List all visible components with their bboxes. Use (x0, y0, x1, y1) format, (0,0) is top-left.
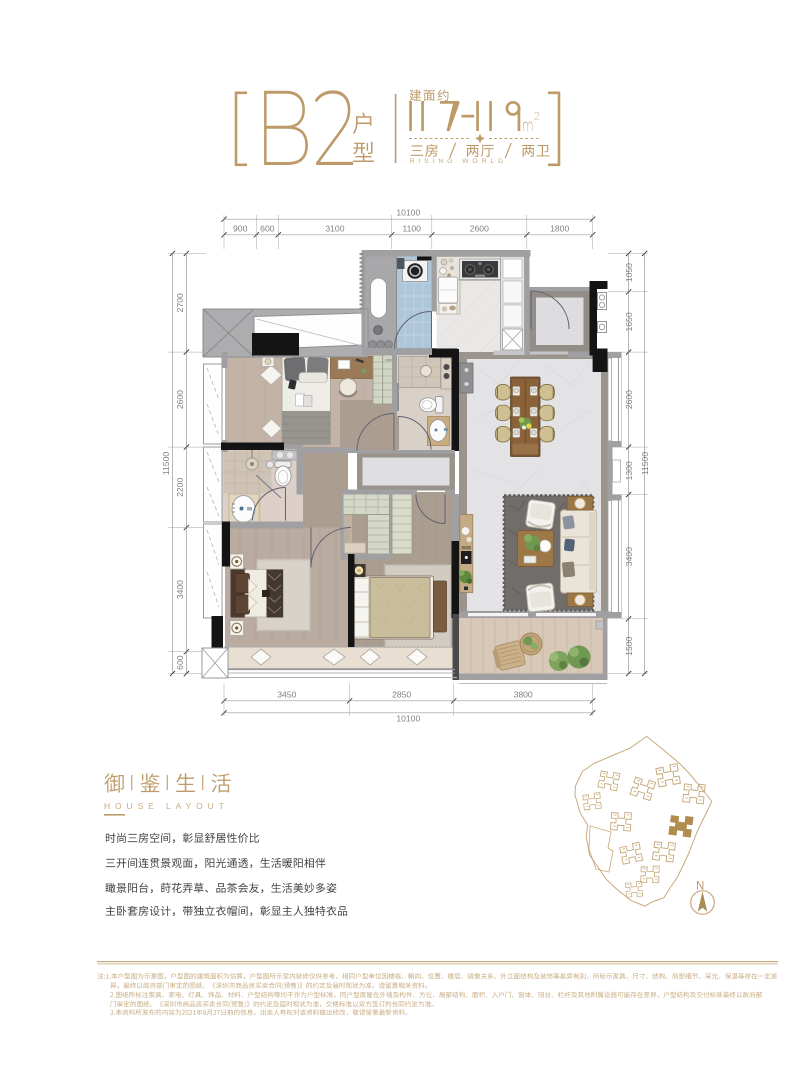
svg-text:3400: 3400 (175, 580, 185, 599)
svg-text:900: 900 (233, 223, 248, 233)
svg-text:3450: 3450 (277, 690, 296, 700)
svg-text:11500: 11500 (161, 452, 171, 475)
svg-text:2600: 2600 (175, 390, 185, 409)
svg-text:3800: 3800 (514, 690, 533, 700)
svg-text:3400: 3400 (624, 547, 634, 566)
svg-text:1050: 1050 (624, 263, 634, 282)
svg-text:2700: 2700 (175, 293, 185, 312)
svg-text:600: 600 (260, 223, 275, 233)
svg-text:1300: 1300 (624, 461, 634, 480)
svg-text:11500: 11500 (640, 452, 650, 475)
svg-text:2200: 2200 (175, 478, 185, 497)
svg-text:2600: 2600 (624, 390, 634, 409)
svg-text:1800: 1800 (550, 223, 569, 233)
svg-text:1100: 1100 (402, 223, 421, 233)
svg-text:2600: 2600 (470, 223, 489, 233)
svg-text:10100: 10100 (396, 714, 420, 724)
svg-text:1650: 1650 (624, 312, 634, 331)
svg-text:600: 600 (175, 655, 185, 670)
svg-text:HOUSE LAYOUT: HOUSE LAYOUT (104, 801, 229, 811)
svg-text:2850: 2850 (392, 690, 411, 700)
svg-text:RISING WORLD: RISING WORLD (410, 158, 507, 165)
svg-text:1500: 1500 (624, 636, 634, 655)
svg-text:10100: 10100 (396, 208, 420, 218)
svg-text:3100: 3100 (325, 223, 344, 233)
